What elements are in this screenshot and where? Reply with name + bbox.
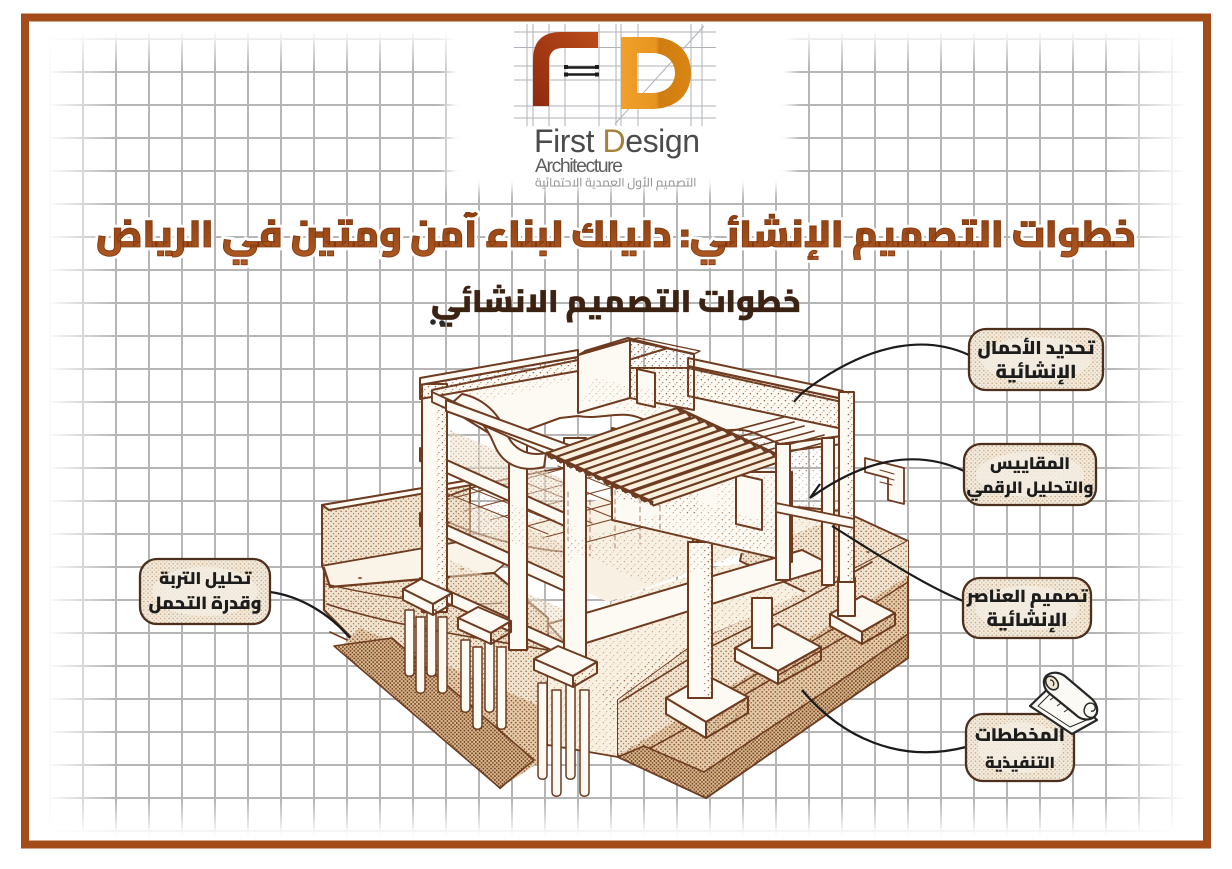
- svg-text:First Design: First Design: [534, 123, 700, 159]
- svg-text:Architecture: Architecture: [535, 155, 623, 177]
